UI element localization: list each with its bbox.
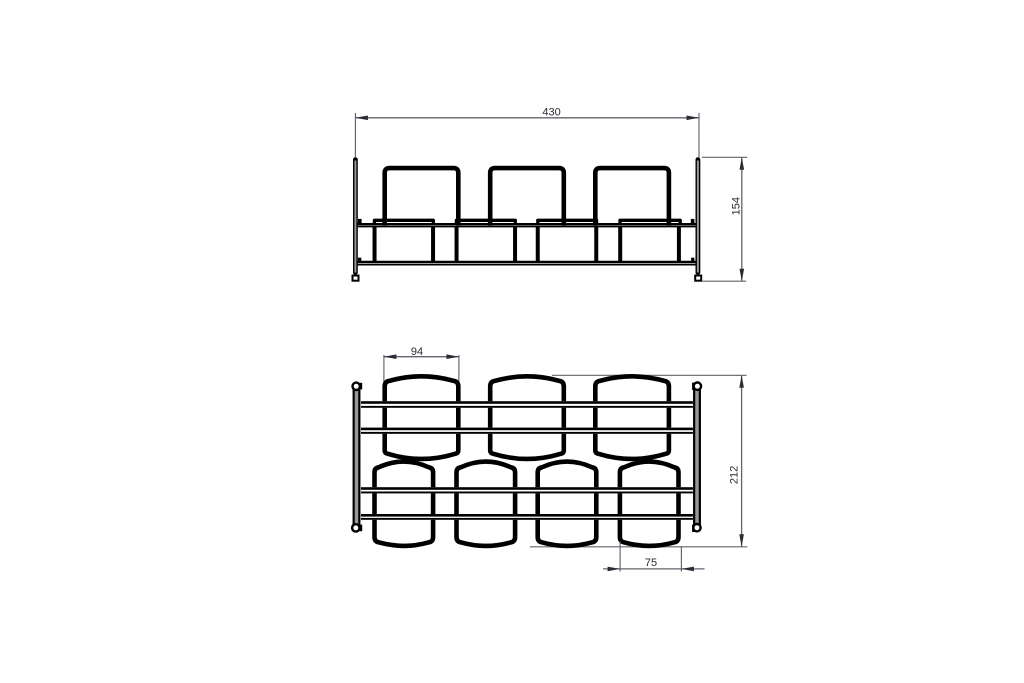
svg-text:94: 94 — [411, 346, 423, 358]
svg-text:75: 75 — [645, 557, 657, 569]
svg-text:212: 212 — [729, 466, 741, 484]
svg-text:430: 430 — [542, 106, 560, 118]
svg-text:154: 154 — [730, 197, 742, 215]
